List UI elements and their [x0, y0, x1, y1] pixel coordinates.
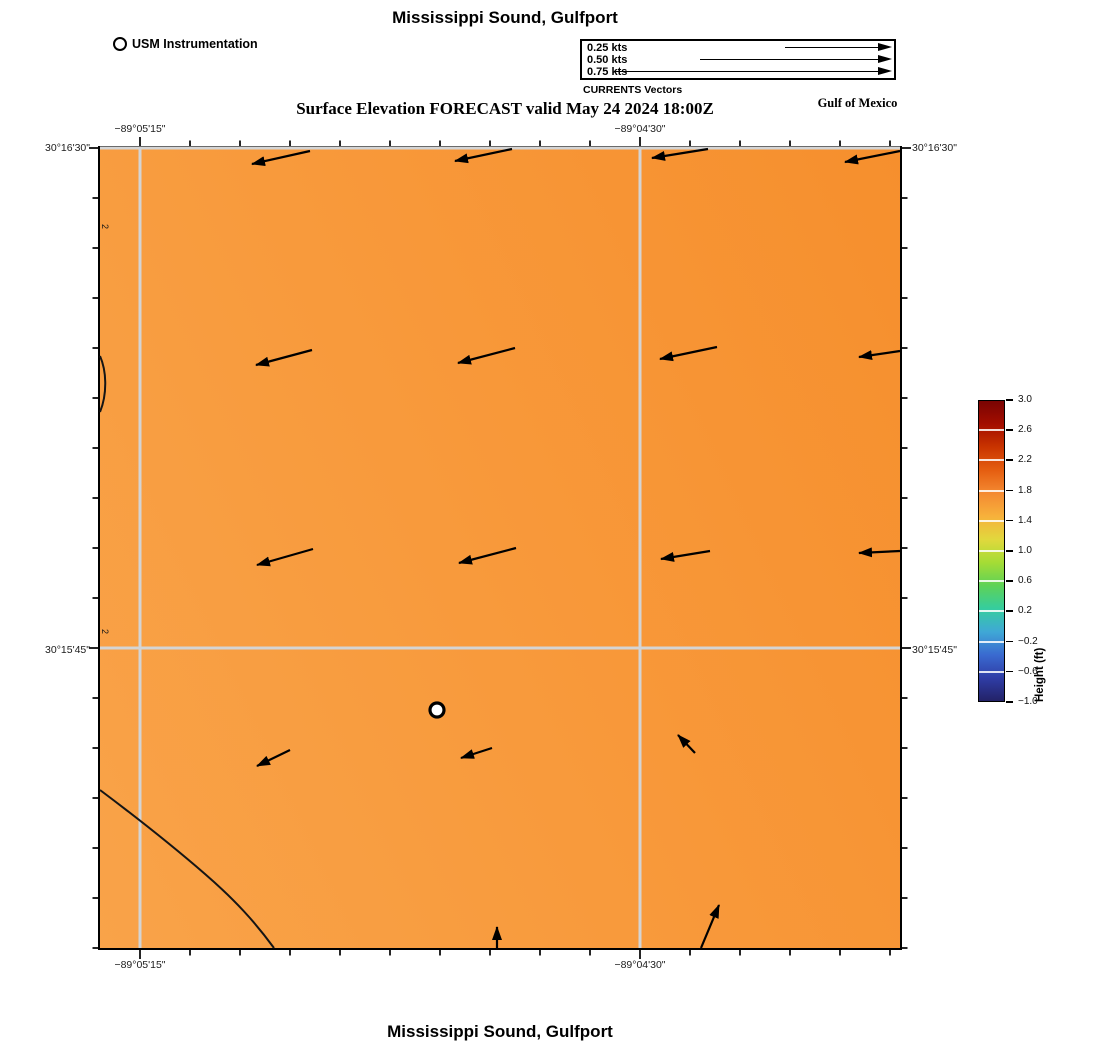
lon-label-top-right: −89°04'30"	[590, 123, 690, 135]
lat-label-left-mid: 30°15'45"	[6, 644, 90, 656]
lon-label-top-left: −89°05'15"	[90, 123, 190, 135]
lat-label-left-top: 30°16'30"	[6, 142, 90, 154]
legend-arrow-icon	[785, 47, 878, 48]
station-legend: USM Instrumentation	[113, 37, 258, 51]
legend-speed-label: 0.25 kts	[587, 42, 627, 54]
colorbar-divider	[979, 580, 1004, 582]
colorbar-divider	[979, 429, 1004, 431]
current-vector-arrow-icon	[652, 149, 708, 158]
colorbar-divider	[979, 490, 1004, 492]
lon-label-bottom-right: −89°04'30"	[590, 959, 690, 971]
currents-legend-rows: 0.25 kts0.50 kts0.75 kts	[582, 42, 894, 78]
colorbar-tick-label: 0.2	[1018, 605, 1032, 617]
legend-speed-row: 0.75 kts	[582, 66, 894, 78]
elevation-contour-line	[100, 356, 105, 412]
colorbar-divider	[979, 459, 1004, 461]
legend-speed-label: 0.50 kts	[587, 54, 627, 66]
lat-label-right-top: 30°16'30"	[912, 142, 1002, 154]
colorbar-divider	[979, 550, 1004, 552]
forecast-map: 22	[98, 146, 902, 950]
current-vector-arrow-icon	[458, 348, 515, 363]
page-title: Mississippi Sound, Gulfport	[0, 8, 1010, 28]
current-vector-arrow-icon	[859, 351, 900, 357]
legend-speed-row: 0.50 kts	[582, 54, 894, 66]
colorbar-tick-label: 2.2	[1018, 454, 1032, 466]
colorbar-tick	[1006, 459, 1013, 461]
colorbar-tick-label: 1.8	[1018, 485, 1032, 497]
bottom-title: Mississippi Sound, Gulfport	[0, 1022, 1000, 1042]
colorbar-tick	[1006, 429, 1013, 431]
forecast-subtitle: Surface Elevation FORECAST valid May 24 …	[0, 99, 1010, 119]
colorbar-tick-label: 3.0	[1018, 394, 1032, 406]
colorbar-tick	[1006, 641, 1013, 643]
colorbar-tick-label: 1.4	[1018, 515, 1032, 527]
colorbar-tick	[1006, 550, 1013, 552]
station-circle-icon	[113, 37, 127, 51]
currents-vector-legend-box: 0.25 kts0.50 kts0.75 kts	[580, 39, 896, 80]
current-vector-arrow-icon	[252, 151, 310, 164]
currents-legend-caption: CURRENTS Vectors	[583, 84, 682, 96]
legend-speed-row: 0.25 kts	[582, 42, 894, 54]
current-vector-arrow-icon	[678, 735, 695, 753]
lon-label-bottom-left: −89°05'15"	[90, 959, 190, 971]
colorbar-divider	[979, 671, 1004, 673]
colorbar-tick-label: 0.6	[1018, 575, 1032, 587]
legend-arrow-icon	[615, 71, 878, 72]
current-vector-arrow-icon	[455, 149, 512, 161]
colorbar-tick	[1006, 701, 1013, 703]
elevation-contour-line	[100, 790, 274, 948]
figure-surface-elevation-forecast: Mississippi Sound, Gulfport USM Instrume…	[0, 0, 1100, 1050]
current-vector-arrow-icon	[257, 549, 313, 565]
current-vector-arrow-icon	[660, 347, 717, 359]
current-vector-arrow-icon	[845, 151, 900, 162]
colorbar-divider	[979, 520, 1004, 522]
colorbar-title: Height (ft)	[1034, 400, 1046, 702]
colorbar-tick	[1006, 399, 1013, 401]
colorbar-tick	[1006, 520, 1013, 522]
current-vector-arrow-icon	[256, 350, 312, 365]
station-legend-label: USM Instrumentation	[132, 37, 258, 51]
colorbar-tick-label: 2.6	[1018, 424, 1032, 436]
colorbar-divider	[979, 641, 1004, 643]
current-vector-arrow-icon	[701, 905, 719, 948]
contour-edge-label: 2	[100, 629, 110, 634]
colorbar-tick	[1006, 490, 1013, 492]
colorbar-tick	[1006, 610, 1013, 612]
current-vector-arrow-icon	[459, 548, 516, 563]
colorbar-tick-label: 1.0	[1018, 545, 1032, 557]
current-vector-arrow-icon	[257, 750, 290, 766]
legend-speed-label: 0.75 kts	[587, 66, 627, 78]
map-canvas: 22	[100, 148, 900, 948]
legend-arrow-icon	[700, 59, 878, 60]
current-vector-arrow-icon	[461, 748, 492, 758]
current-vector-arrow-icon	[859, 551, 900, 553]
colorbar-tick	[1006, 580, 1013, 582]
current-vector-arrow-icon	[661, 551, 710, 559]
contour-edge-label: 2	[100, 224, 110, 229]
usm-station-marker	[430, 703, 444, 717]
colorbar-tick	[1006, 671, 1013, 673]
colorbar-divider	[979, 610, 1004, 612]
